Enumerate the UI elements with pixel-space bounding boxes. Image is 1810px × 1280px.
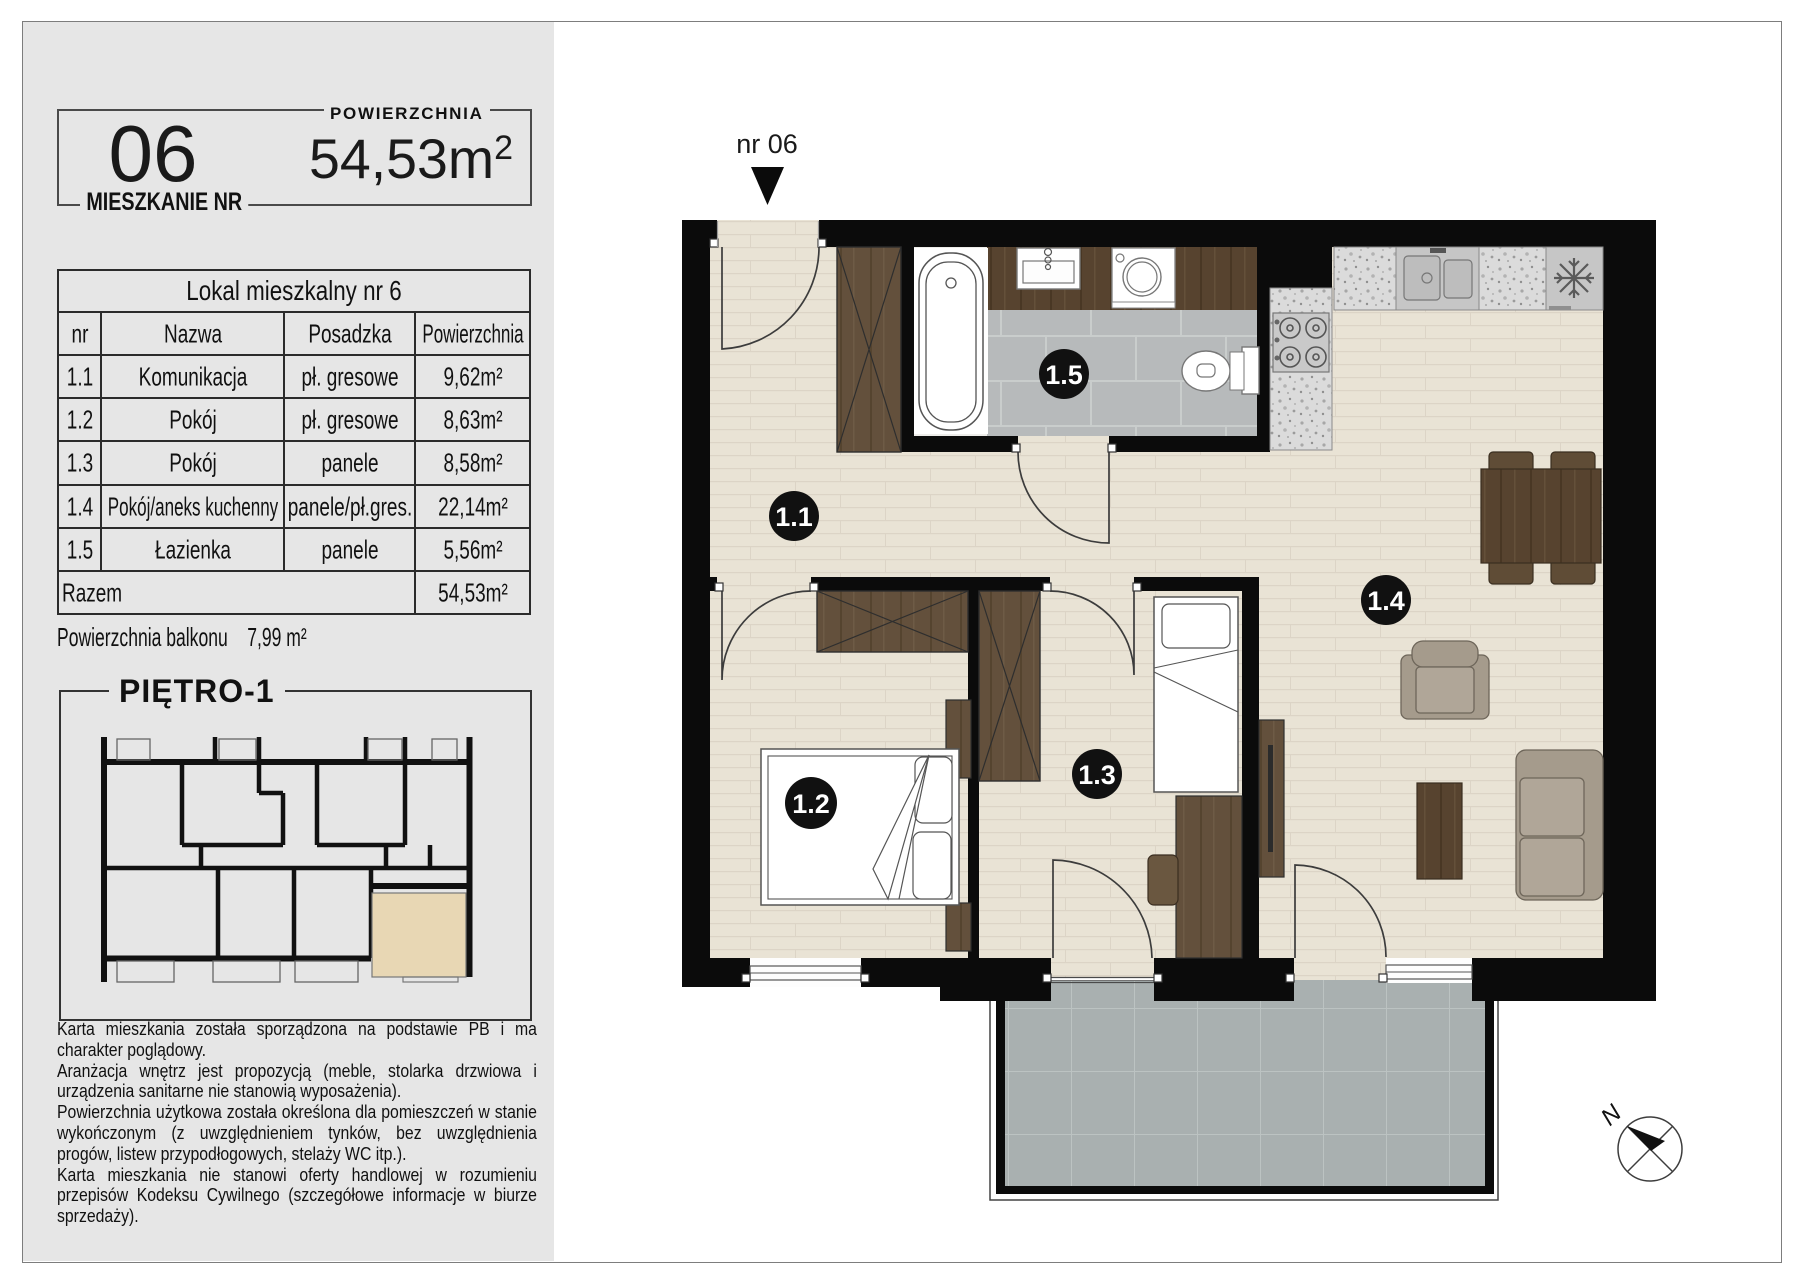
svg-text:1.4: 1.4 (1367, 586, 1405, 616)
svg-text:1.5: 1.5 (1045, 360, 1083, 390)
svg-text:nr 06: nr 06 (736, 129, 798, 159)
svg-text:1.1: 1.1 (775, 502, 813, 532)
svg-text:1.3: 1.3 (1078, 760, 1116, 790)
svg-text:N: N (1596, 1099, 1627, 1131)
svg-text:1.2: 1.2 (792, 789, 830, 819)
